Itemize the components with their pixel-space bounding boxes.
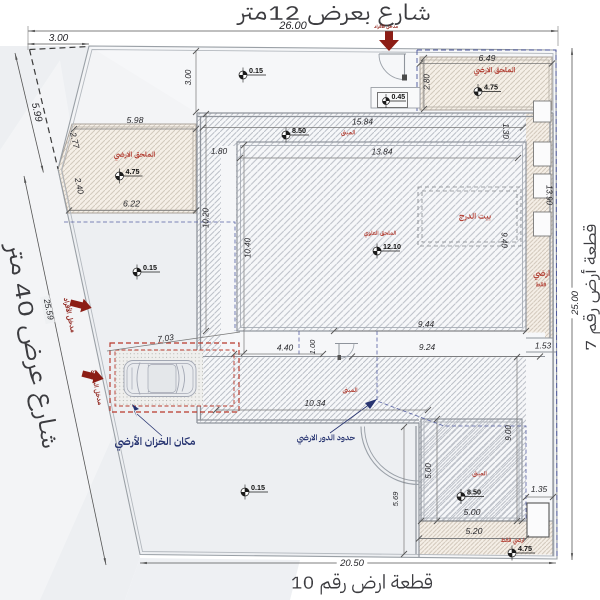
svg-text:26.00: 26.00 (278, 20, 307, 32)
svg-text:20.50: 20.50 (339, 558, 364, 569)
svg-text:1.00: 1.00 (308, 339, 317, 355)
svg-text:3.00: 3.00 (49, 33, 69, 44)
svg-text:4.75: 4.75 (484, 83, 498, 92)
svg-text:9.00: 9.00 (504, 425, 513, 441)
svg-text:1.35: 1.35 (531, 484, 548, 494)
svg-text:6.49: 6.49 (479, 53, 496, 63)
svg-text:6.22: 6.22 (123, 199, 140, 209)
svg-text:4.40: 4.40 (277, 343, 294, 353)
svg-text:0.15: 0.15 (143, 263, 157, 272)
svg-text:5.98: 5.98 (127, 115, 144, 125)
svg-text:1.30: 1.30 (501, 123, 510, 139)
svg-text:8.50: 8.50 (292, 126, 306, 135)
svg-text:10.40: 10.40 (244, 237, 253, 258)
svg-text:0.15: 0.15 (249, 66, 263, 75)
svg-text:13.84: 13.84 (372, 147, 393, 157)
svg-text:15.84: 15.84 (352, 117, 373, 127)
svg-text:13.90: 13.90 (545, 185, 554, 206)
svg-text:5.69: 5.69 (391, 491, 400, 507)
svg-text:10.20: 10.20 (202, 207, 211, 228)
svg-text:9.40: 9.40 (500, 232, 509, 248)
svg-text:1.53: 1.53 (535, 341, 552, 351)
svg-text:9.24: 9.24 (419, 342, 436, 352)
svg-text:9.44: 9.44 (418, 319, 435, 329)
svg-text:8.50: 8.50 (467, 488, 481, 497)
svg-text:4.75: 4.75 (518, 544, 532, 553)
svg-text:10.34: 10.34 (305, 398, 326, 408)
svg-text:5.20: 5.20 (466, 526, 483, 536)
svg-text:5.00: 5.00 (464, 507, 481, 517)
svg-text:12.10: 12.10 (383, 242, 401, 251)
svg-text:25.00: 25.00 (570, 290, 581, 315)
svg-text:5.00: 5.00 (424, 463, 433, 479)
svg-text:0.45: 0.45 (392, 94, 406, 101)
svg-text:1.80: 1.80 (211, 146, 228, 156)
svg-text:3.00: 3.00 (184, 69, 193, 85)
svg-text:0.15: 0.15 (251, 483, 265, 492)
svg-text:4.75: 4.75 (126, 167, 140, 176)
svg-text:2.80: 2.80 (423, 74, 432, 91)
